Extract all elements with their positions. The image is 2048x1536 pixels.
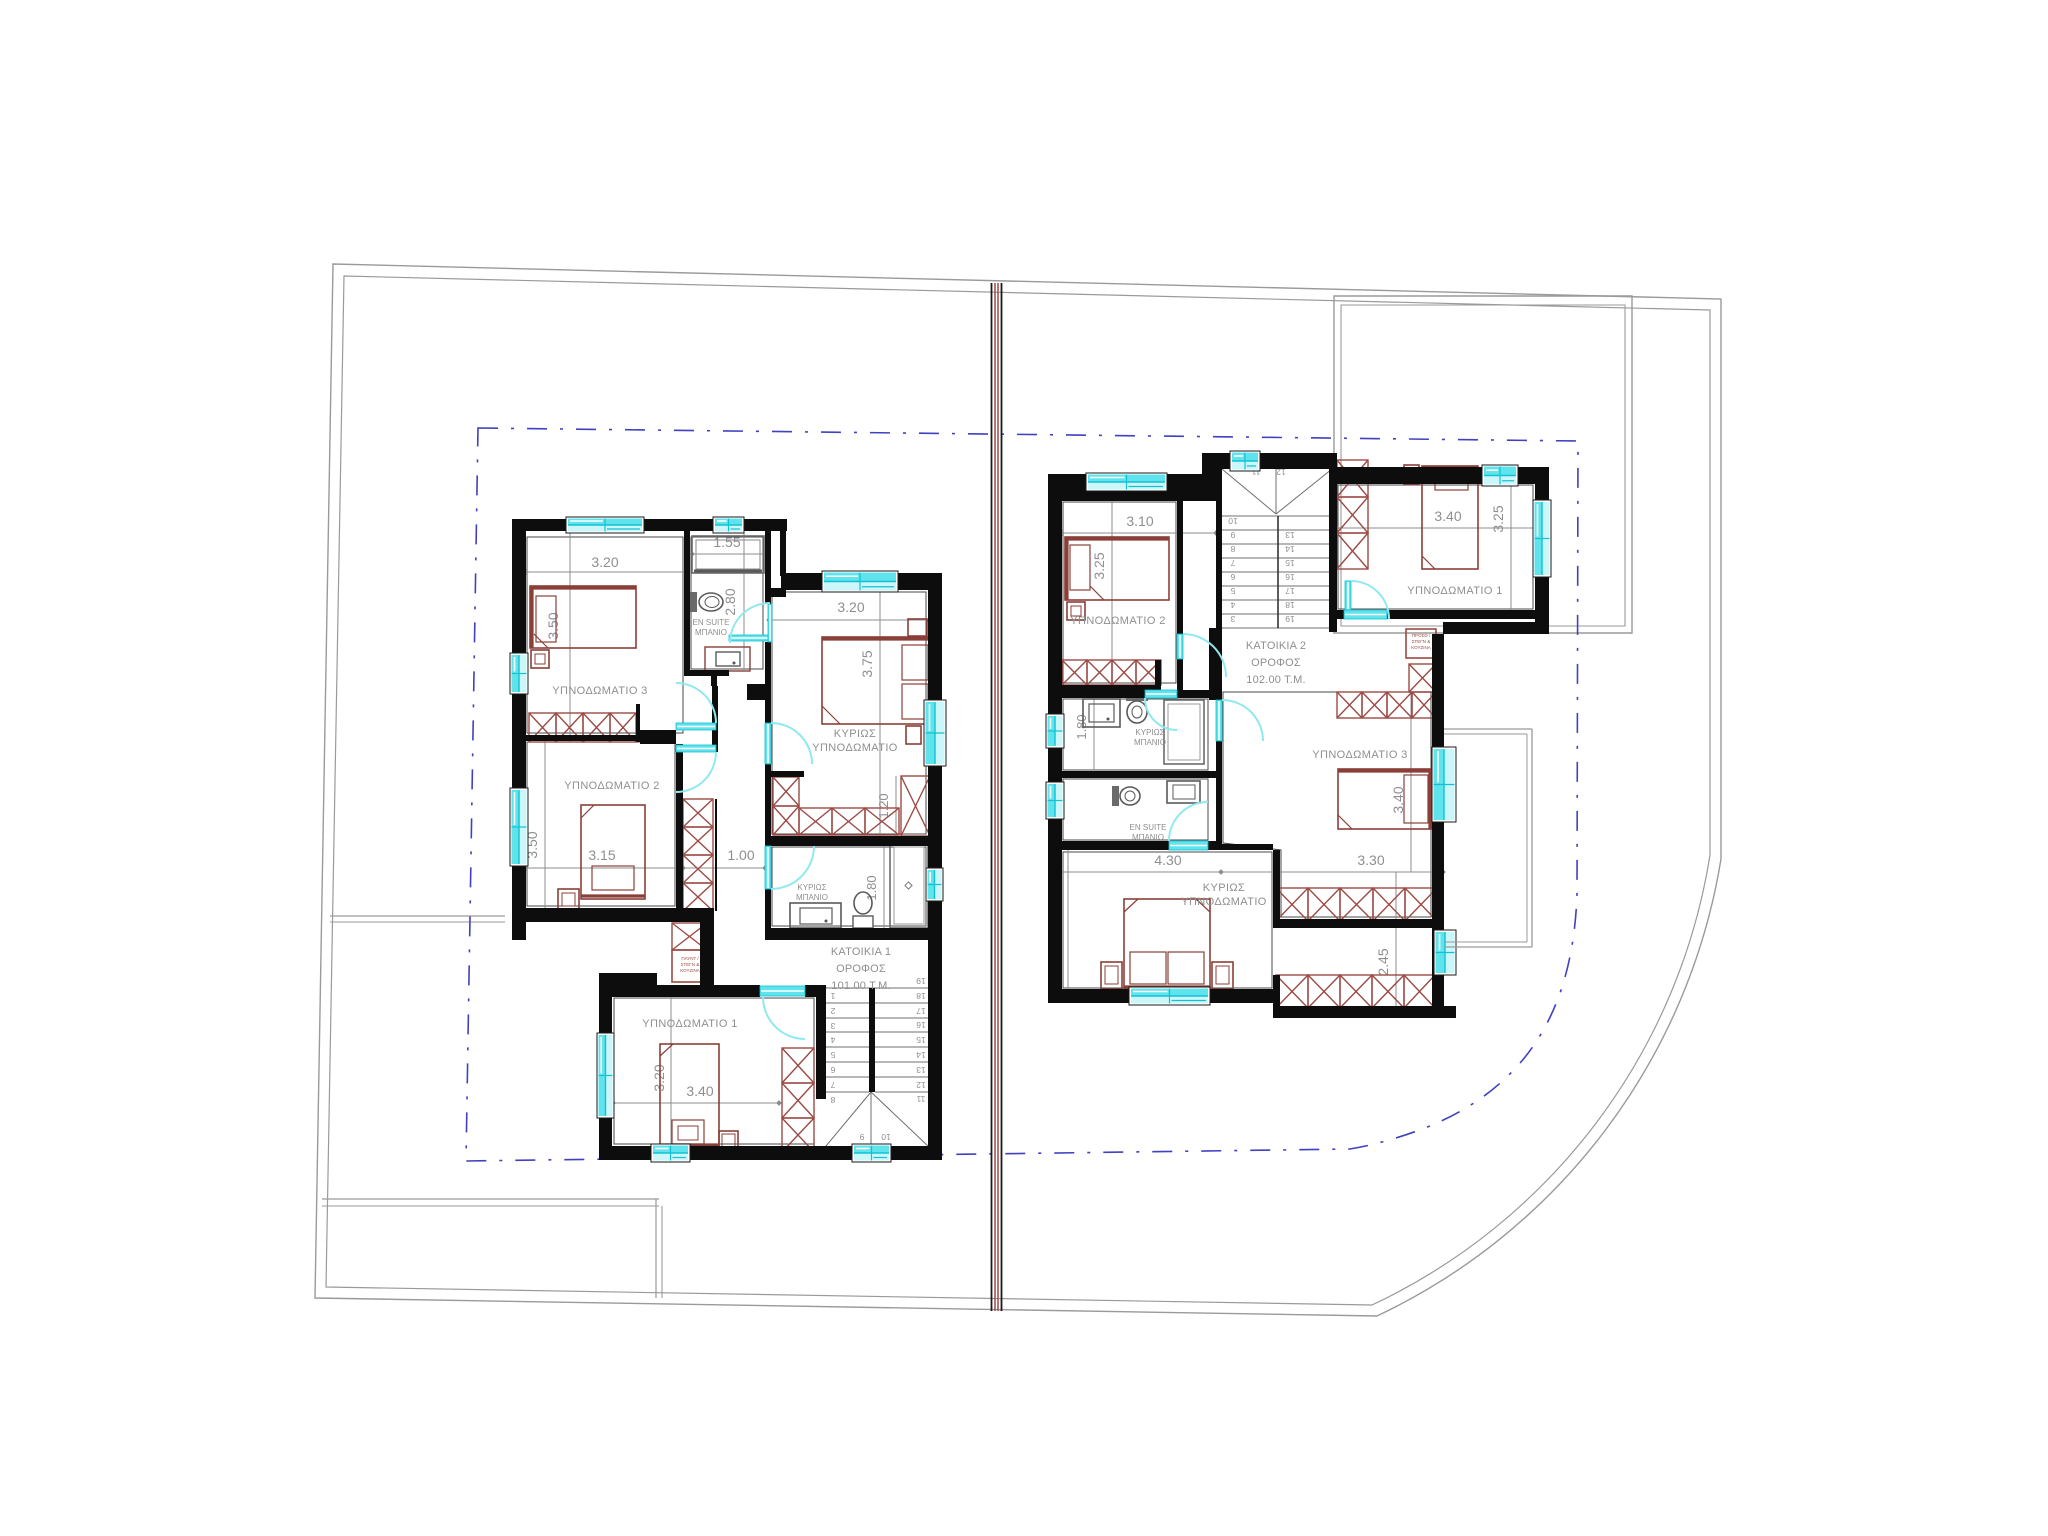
svg-text:11: 11	[916, 1094, 925, 1104]
svg-text:ΚΥΡΙΩΣ: ΚΥΡΙΩΣ	[797, 883, 826, 892]
svg-text:19: 19	[1285, 614, 1295, 624]
svg-text:ΥΠΝΟΔΩΜΑΤΙΟ 2: ΥΠΝΟΔΩΜΑΤΙΟ 2	[564, 780, 660, 792]
svg-text:ΠΡΟΣΘ /: ΠΡΟΣΘ /	[1412, 633, 1431, 638]
svg-text:4: 4	[830, 1035, 835, 1045]
svg-text:2: 2	[830, 1006, 835, 1016]
svg-text:101.00 Τ.Μ.: 101.00 Τ.Μ.	[831, 980, 891, 992]
svg-text:ΚΟΥΖΙΝΑ: ΚΟΥΖΙΝΑ	[680, 968, 699, 973]
svg-text:ΥΠΝΟΔΩΜΑΤΙΟ: ΥΠΝΟΔΩΜΑΤΙΟ	[1181, 896, 1267, 908]
svg-text:5: 5	[1230, 586, 1235, 596]
svg-text:4.30: 4.30	[1154, 852, 1181, 868]
svg-text:ΜΠΑΝΙΟ: ΜΠΑΝΙΟ	[796, 893, 828, 902]
svg-text:ΚΑΤΟΙΚΙΑ 1: ΚΑΤΟΙΚΙΑ 1	[831, 946, 891, 958]
svg-text:1.80: 1.80	[864, 875, 879, 900]
svg-text:9: 9	[859, 1132, 864, 1142]
svg-text:10: 10	[1228, 516, 1238, 526]
svg-text:102.00 Τ.Μ.: 102.00 Τ.Μ.	[1246, 674, 1306, 686]
svg-text:18: 18	[1285, 600, 1295, 610]
svg-text:5: 5	[830, 1050, 835, 1060]
svg-text:3.50: 3.50	[545, 612, 561, 639]
svg-text:15: 15	[916, 1035, 926, 1045]
svg-text:12: 12	[916, 1080, 926, 1090]
svg-text:ΥΠΝΟΔΩΜΑΤΙΟ 3: ΥΠΝΟΔΩΜΑΤΙΟ 3	[552, 685, 648, 697]
svg-text:3.40: 3.40	[1434, 508, 1461, 524]
svg-text:ΟΡΟΦΟΣ: ΟΡΟΦΟΣ	[1251, 657, 1301, 669]
svg-text:ΚΟΥΖΙΝΑ: ΚΟΥΖΙΝΑ	[1411, 645, 1430, 650]
svg-text:14: 14	[1285, 544, 1295, 554]
svg-text:3: 3	[1230, 614, 1235, 624]
svg-text:19: 19	[916, 976, 926, 986]
svg-text:3.40: 3.40	[686, 1083, 713, 1099]
svg-text:1: 1	[830, 991, 835, 1001]
svg-text:4: 4	[1230, 600, 1235, 610]
svg-text:ΠΛΥΝΤ /: ΠΛΥΝΤ /	[681, 956, 699, 961]
svg-text:3.10: 3.10	[1126, 513, 1153, 529]
svg-text:2.80: 2.80	[722, 588, 738, 615]
svg-text:8: 8	[1230, 544, 1235, 554]
svg-text:15: 15	[1285, 558, 1295, 568]
svg-text:14: 14	[916, 1050, 926, 1060]
svg-text:8: 8	[830, 1095, 835, 1105]
svg-text:ΚΥΡΙΩΣ: ΚΥΡΙΩΣ	[834, 728, 877, 740]
svg-text:17: 17	[1285, 586, 1295, 596]
svg-text:ΚΥΡΙΩΣ: ΚΥΡΙΩΣ	[1135, 728, 1164, 737]
svg-text:ΣΤΕΓΝ &: ΣΤΕΓΝ &	[681, 962, 700, 967]
svg-text:1.00: 1.00	[727, 847, 754, 863]
svg-text:ΜΠΑΝΙΟ: ΜΠΑΝΙΟ	[1134, 738, 1166, 747]
svg-text:ΥΠΝΟΔΩΜΑΤΙΟ 1: ΥΠΝΟΔΩΜΑΤΙΟ 1	[642, 1018, 738, 1030]
svg-text:10: 10	[881, 1132, 891, 1142]
svg-text:3.25: 3.25	[1490, 505, 1506, 532]
svg-text:16: 16	[916, 1020, 926, 1030]
svg-text:3.75: 3.75	[859, 650, 875, 677]
svg-text:7: 7	[830, 1080, 835, 1090]
svg-text:ΚΑΤΟΙΚΙΑ 2: ΚΑΤΟΙΚΙΑ 2	[1246, 640, 1306, 652]
svg-text:6: 6	[1230, 572, 1235, 582]
svg-text:7: 7	[1230, 558, 1235, 568]
svg-text:3.20: 3.20	[837, 599, 864, 615]
svg-text:16: 16	[1285, 572, 1295, 582]
svg-text:17: 17	[916, 1006, 926, 1016]
svg-text:EN SUITE: EN SUITE	[693, 618, 730, 627]
svg-text:3: 3	[830, 1021, 835, 1031]
svg-text:6: 6	[830, 1065, 835, 1075]
svg-text:13: 13	[1285, 530, 1295, 540]
svg-text:13: 13	[916, 1065, 926, 1075]
svg-text:3.20: 3.20	[591, 554, 618, 570]
svg-text:ΚΥΡΙΩΣ: ΚΥΡΙΩΣ	[1203, 882, 1246, 894]
svg-text:ΟΡΟΦΟΣ: ΟΡΟΦΟΣ	[836, 963, 886, 975]
svg-text:3.20: 3.20	[651, 1064, 667, 1091]
svg-text:3.25: 3.25	[1091, 552, 1107, 579]
svg-text:9: 9	[1230, 530, 1235, 540]
svg-text:ΜΠΑΝΙΟ: ΜΠΑΝΙΟ	[695, 628, 727, 637]
svg-text:ΣΤΕΓΝ &: ΣΤΕΓΝ &	[1412, 639, 1431, 644]
svg-text:EN SUITE: EN SUITE	[1130, 823, 1167, 832]
svg-text:ΜΠΑΝΙΟ: ΜΠΑΝΙΟ	[1132, 833, 1164, 842]
svg-text:1.20: 1.20	[876, 793, 891, 818]
svg-text:3.30: 3.30	[1357, 852, 1384, 868]
svg-text:2.45: 2.45	[1375, 948, 1391, 975]
svg-text:ΥΠΝΟΔΩΜΑΤΙΟ 2: ΥΠΝΟΔΩΜΑΤΙΟ 2	[1070, 615, 1166, 627]
svg-text:ΥΠΝΟΔΩΜΑΤΙΟ: ΥΠΝΟΔΩΜΑΤΙΟ	[812, 742, 898, 754]
svg-text:ΥΠΝΟΔΩΜΑΤΙΟ 1: ΥΠΝΟΔΩΜΑΤΙΟ 1	[1407, 585, 1503, 597]
svg-text:ΥΠΝΟΔΩΜΑΤΙΟ 3: ΥΠΝΟΔΩΜΑΤΙΟ 3	[1312, 749, 1408, 761]
svg-text:18: 18	[916, 991, 926, 1001]
svg-text:3.15: 3.15	[588, 847, 615, 863]
